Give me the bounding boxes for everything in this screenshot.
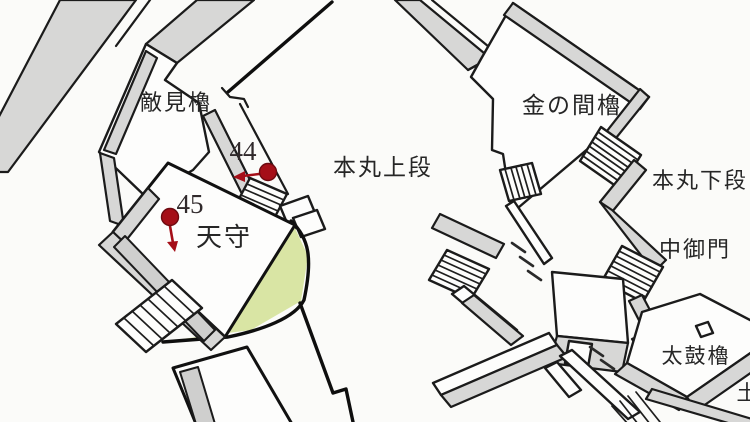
approach-wall-gray [462,295,523,345]
label-tekimi-yagura: 敵見櫓 [140,90,212,115]
marker-44-dot[interactable] [260,164,277,181]
castle-map: 敵見櫓 本丸上段 金の間櫓 本丸下段 中御門 天守 太鼓櫓 土 44 45 [0,0,750,422]
marker-45-dot[interactable] [162,209,179,226]
label-tenshu: 天守 [196,223,252,252]
label-honmaru-lower: 本丸下段 [652,168,748,193]
lower-boundary-wall [300,303,353,422]
corridor-northeast-wall [228,2,332,92]
kin-no-ma-south-stairs [500,163,541,201]
marker-44-number: 44 [230,136,258,166]
lower-bailey-building [173,347,292,422]
upper-terrace-band [432,214,504,258]
marker-45-number: 45 [177,189,204,219]
gate-hook [222,88,248,107]
connecting-wall [506,201,552,264]
label-edge-partial: 土 [737,381,750,405]
label-taiko-yagura: 太鼓櫓 [662,344,731,368]
gatehouse-face [552,272,628,343]
label-kin-no-ma-yagura: 金の間櫓 [522,93,622,118]
label-honmaru-upper: 本丸上段 [333,155,433,180]
castle-map-drawing: 敵見櫓 本丸上段 金の間櫓 本丸下段 中御門 天守 太鼓櫓 土 44 45 [0,0,750,422]
label-naka-gomon: 中御門 [659,237,731,262]
